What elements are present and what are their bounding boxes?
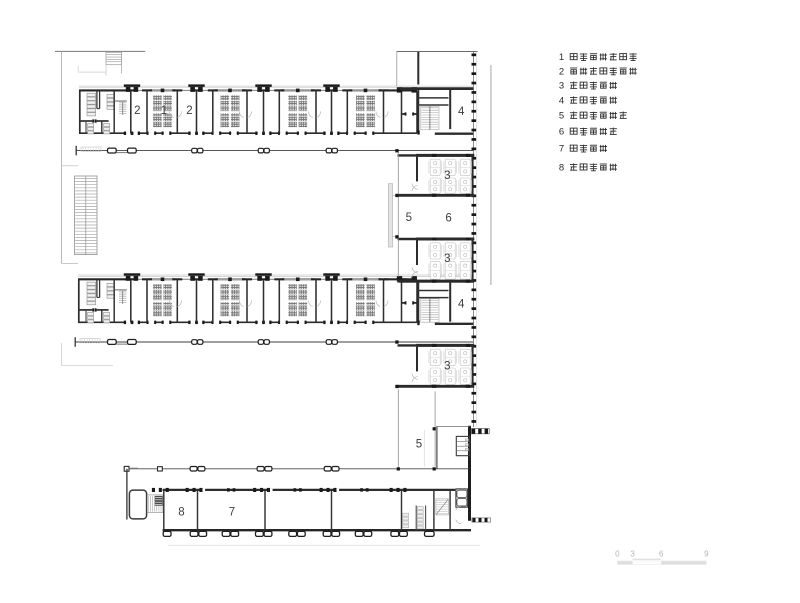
svg-text:5: 5 — [559, 111, 564, 122]
svg-text:4: 4 — [559, 95, 564, 106]
svg-text:1: 1 — [161, 105, 167, 117]
svg-text:6: 6 — [559, 127, 564, 138]
svg-text:4: 4 — [458, 106, 465, 118]
svg-text:8: 8 — [178, 507, 184, 519]
svg-text:3: 3 — [444, 361, 450, 373]
svg-text:7: 7 — [559, 144, 564, 155]
svg-text:2: 2 — [134, 105, 140, 117]
svg-text:1: 1 — [559, 52, 564, 63]
svg-text:3: 3 — [444, 253, 450, 265]
svg-text:6: 6 — [445, 213, 451, 225]
svg-text:2: 2 — [559, 66, 564, 77]
svg-text:0: 0 — [615, 550, 620, 559]
svg-text:7: 7 — [229, 507, 235, 519]
svg-text:8: 8 — [559, 162, 564, 173]
svg-text:3: 3 — [630, 550, 635, 559]
svg-text:5: 5 — [416, 439, 422, 451]
svg-text:3: 3 — [559, 81, 564, 92]
svg-text:6: 6 — [659, 550, 664, 559]
svg-text:4: 4 — [458, 299, 465, 311]
svg-text:9: 9 — [704, 550, 709, 559]
svg-text:2: 2 — [186, 105, 192, 117]
svg-text:3: 3 — [444, 170, 450, 182]
svg-text:5: 5 — [406, 212, 412, 224]
